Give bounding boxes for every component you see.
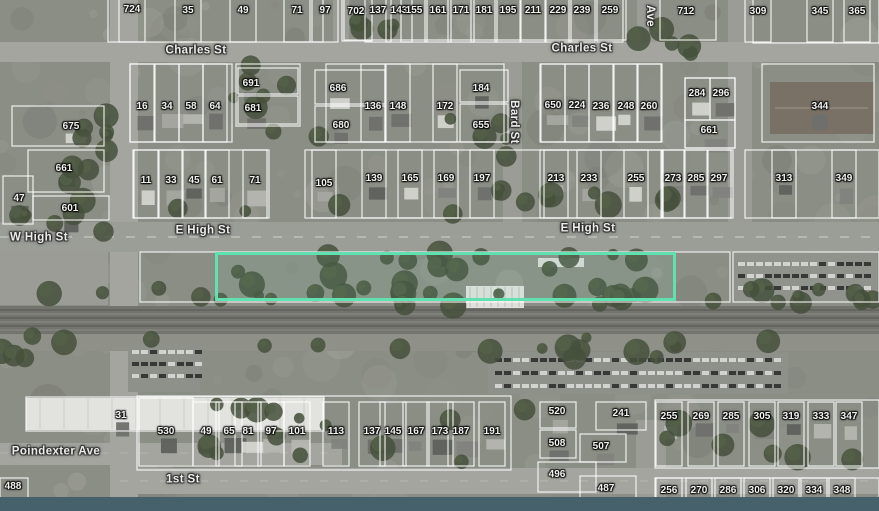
map-viewport[interactable]: 7243549719770213714315516117118119521122… xyxy=(0,0,879,511)
selected-parcel-highlight[interactable] xyxy=(215,252,676,301)
bottom-bar xyxy=(0,497,879,511)
